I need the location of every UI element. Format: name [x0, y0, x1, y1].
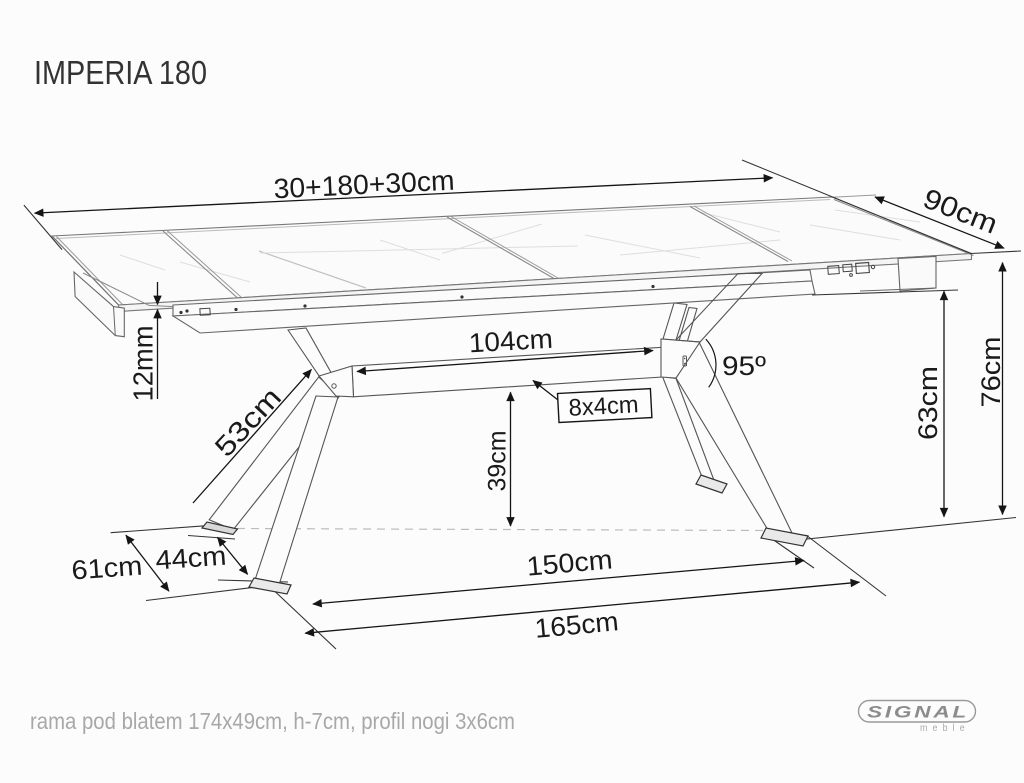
- svg-text:39cm: 39cm: [484, 431, 512, 492]
- svg-text:SIGNAL: SIGNAL: [867, 704, 969, 722]
- svg-text:m e b l e: m e b l e: [920, 723, 966, 734]
- svg-text:76cm: 76cm: [976, 337, 1006, 408]
- svg-text:44cm: 44cm: [154, 541, 227, 576]
- svg-text:63cm: 63cm: [913, 366, 943, 440]
- svg-text:rama pod blatem 174x49cm, h-7c: rama pod blatem 174x49cm, h-7cm, profil …: [30, 708, 515, 734]
- svg-text:8x4cm: 8x4cm: [568, 391, 639, 422]
- svg-text:IMPERIA 180: IMPERIA 180: [34, 54, 207, 91]
- svg-text:104cm: 104cm: [468, 324, 554, 359]
- svg-text:61cm: 61cm: [70, 551, 143, 586]
- svg-text:95º: 95º: [722, 351, 766, 381]
- svg-text:12mm: 12mm: [128, 326, 159, 402]
